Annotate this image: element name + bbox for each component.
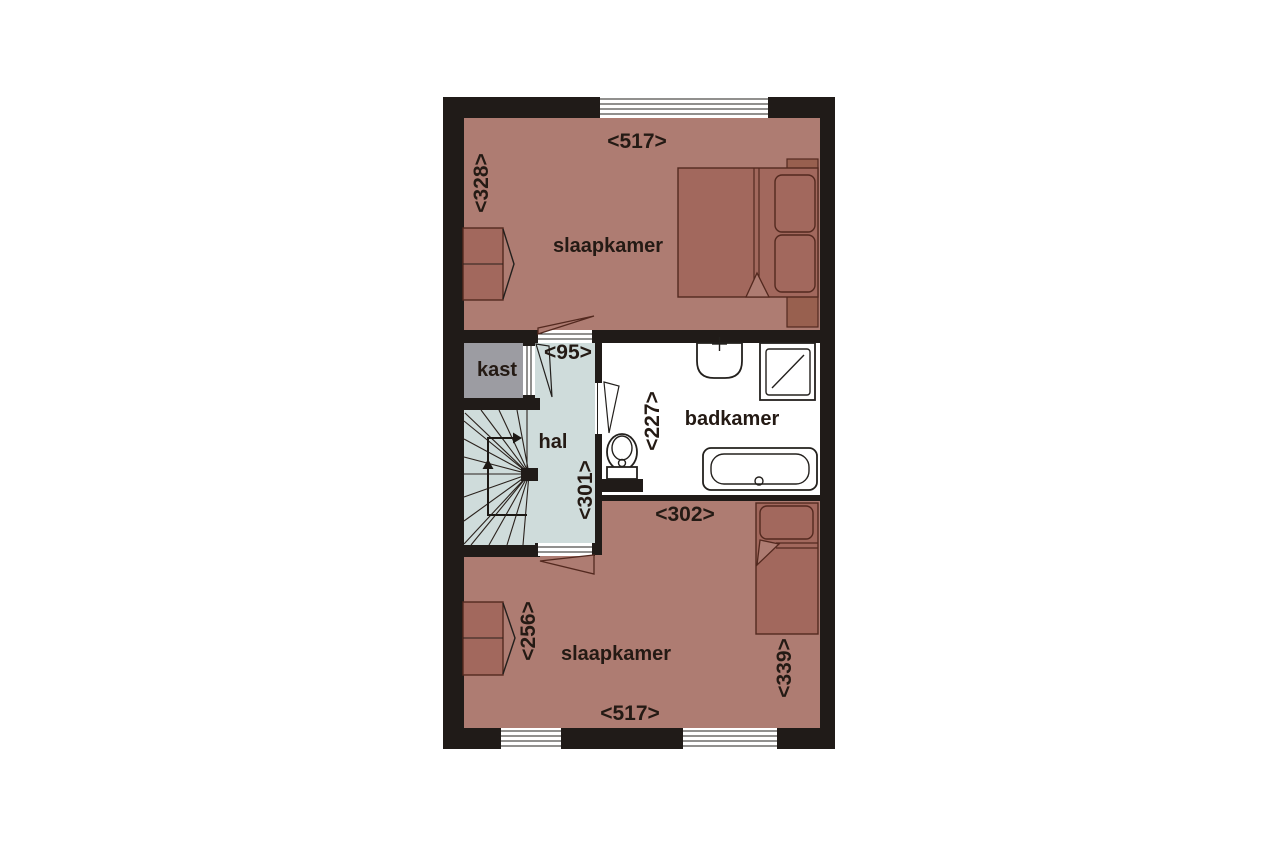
stair-newel-post: [521, 468, 538, 481]
bathtub: [703, 448, 817, 490]
label-hal: hal: [539, 431, 568, 453]
dim-closet-wall-height: <256>: [517, 601, 540, 661]
dim-badkamer-height: <227>: [641, 391, 664, 451]
dim-hal-height: <301>: [574, 460, 597, 520]
label-slaapkamer-bottom: slaapkamer: [561, 643, 671, 665]
pillow: [775, 235, 815, 292]
dim-bottom-room-right-height: <339>: [773, 638, 796, 698]
dim-bottom-room-width: <517>: [600, 702, 660, 725]
shower: [760, 343, 815, 400]
dim-hal-width: <95>: [544, 341, 592, 364]
dim-badkamer-width: <302>: [655, 503, 715, 526]
door-frame-kast: [523, 343, 535, 398]
door-frame-badkamer: [595, 380, 602, 437]
label-badkamer: badkamer: [685, 408, 780, 430]
floorplan: slaapkamer kast hal badkamer slaapkamer …: [443, 97, 835, 749]
sink: [697, 337, 742, 378]
window-bottom-left: [501, 728, 561, 749]
pillow: [775, 175, 815, 232]
label-slaapkamer-top: slaapkamer: [553, 235, 663, 257]
single-bed: [756, 503, 818, 634]
toilet: [607, 434, 637, 479]
page: slaapkamer kast hal badkamer slaapkamer …: [0, 0, 1280, 853]
dim-top-room-width: <517>: [607, 130, 667, 153]
wall-below-kast: [443, 398, 540, 410]
window-bottom-right: [683, 728, 777, 749]
label-kast: kast: [477, 359, 517, 381]
window-top: [600, 97, 768, 118]
door-frame-bottom-bedroom: [535, 543, 595, 556]
dim-top-room-height: <328>: [470, 153, 493, 213]
pillow: [760, 506, 813, 539]
wall-below-stairs: [443, 545, 540, 557]
wall-hal-badkamer: [595, 343, 602, 555]
floorplan-svg: slaapkamer kast hal badkamer slaapkamer …: [443, 97, 835, 749]
wall-stub-toilet: [600, 479, 643, 492]
